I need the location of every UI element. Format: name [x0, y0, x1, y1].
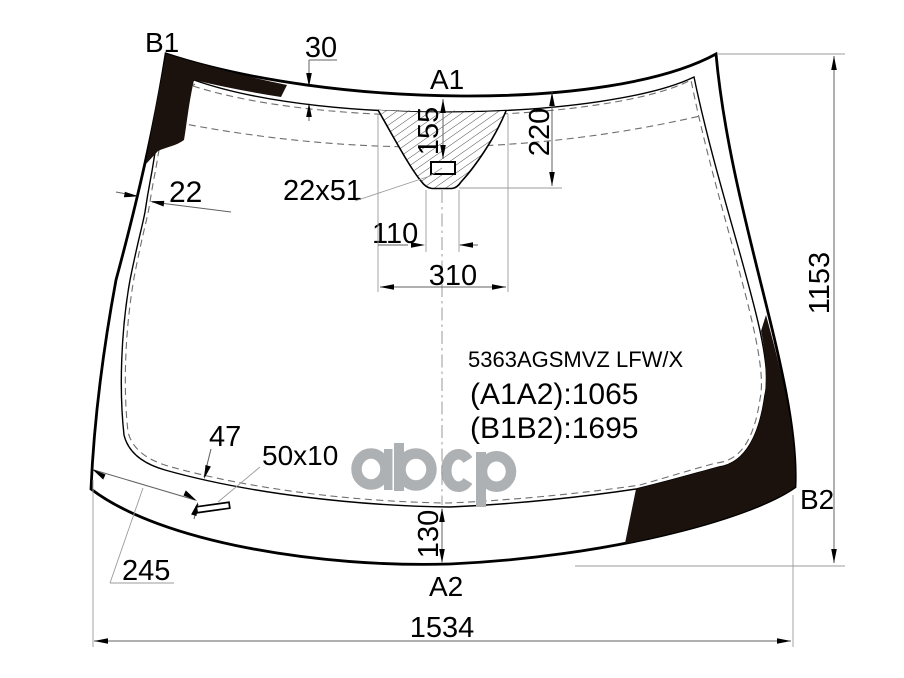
svg-text:A2: A2: [429, 571, 463, 602]
svg-text:(B1B2):1695: (B1B2):1695: [470, 412, 638, 445]
svg-text:B1: B1: [145, 27, 179, 58]
svg-text:1534: 1534: [410, 612, 475, 644]
svg-text:155: 155: [413, 107, 445, 155]
svg-text:B2: B2: [800, 484, 834, 515]
svg-text:1153: 1153: [804, 252, 836, 314]
svg-text:22: 22: [169, 176, 202, 209]
svg-text:50x10: 50x10: [262, 440, 338, 471]
svg-text:A1: A1: [430, 64, 464, 95]
svg-text:220: 220: [524, 108, 556, 156]
svg-text:245: 245: [122, 555, 170, 587]
svg-text:47: 47: [209, 421, 241, 453]
svg-text:(A1A2):1065: (A1A2):1065: [470, 378, 638, 411]
svg-text:30: 30: [305, 32, 337, 64]
svg-text:5363AGSMVZ LFW/X: 5363AGSMVZ LFW/X: [468, 347, 684, 372]
svg-text:22x51: 22x51: [283, 175, 362, 207]
